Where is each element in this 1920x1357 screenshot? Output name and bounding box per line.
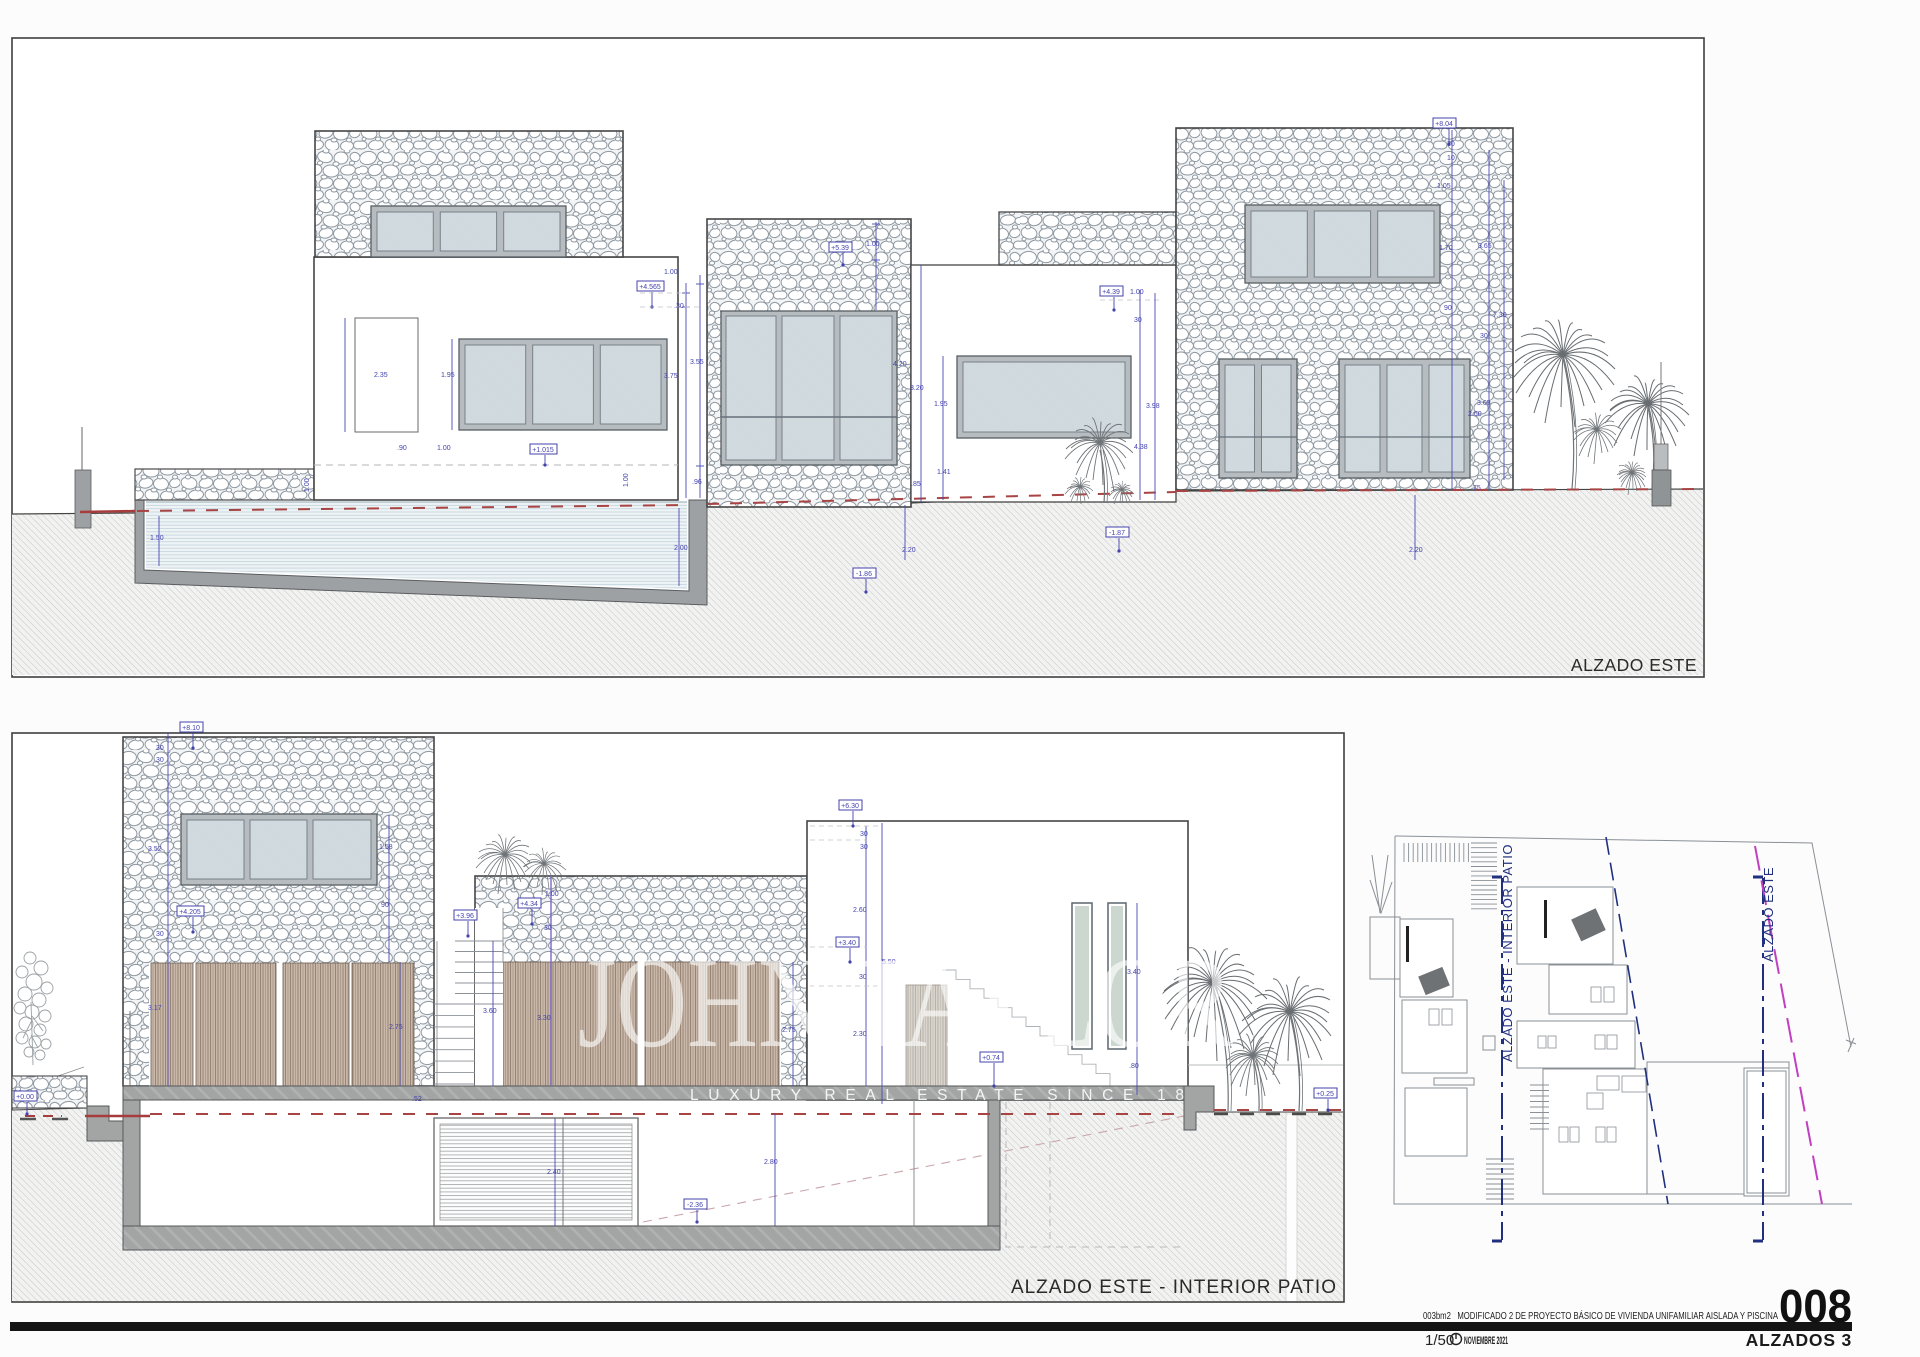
svg-text:2.75: 2.75 <box>389 1024 403 1031</box>
svg-text:1.00: 1.00 <box>623 473 630 487</box>
svg-text:4.20: 4.20 <box>893 361 907 368</box>
svg-text:30: 30 <box>860 831 868 838</box>
svg-text:ALZADO ESTE - INTERIOR PATIO: ALZADO ESTE - INTERIOR PATIO <box>1011 1277 1337 1298</box>
svg-text:+0.25: +0.25 <box>1316 1091 1334 1098</box>
svg-text:1.00: 1.00 <box>437 445 451 452</box>
svg-text:3.98: 3.98 <box>1146 403 1160 410</box>
svg-text:30: 30 <box>1134 317 1142 324</box>
svg-text:+8.04: +8.04 <box>1435 121 1453 128</box>
svg-text:.52: .52 <box>412 1096 422 1103</box>
svg-text:3.75: 3.75 <box>664 373 678 380</box>
svg-text:+6.30: +6.30 <box>841 803 859 810</box>
svg-text:+4.565: +4.565 <box>639 284 661 291</box>
svg-text:+3.96: +3.96 <box>456 913 474 920</box>
svg-text:-1.87: -1.87 <box>1109 530 1125 537</box>
svg-text:NOVIEMBRE 2021: NOVIEMBRE 2021 <box>1464 1335 1508 1347</box>
svg-text:ALZADOS 3: ALZADOS 3 <box>1746 1330 1852 1350</box>
svg-text:+4.34: +4.34 <box>520 901 538 908</box>
svg-text:+8.10: +8.10 <box>182 725 200 732</box>
svg-text:.30: .30 <box>674 303 684 310</box>
svg-text:.75: .75 <box>1471 485 1481 492</box>
svg-text:7.30: 7.30 <box>1493 312 1507 319</box>
svg-text:JOHN TAYLOR: JOHN TAYLOR <box>578 931 1233 1075</box>
svg-text:4.38: 4.38 <box>1134 444 1148 451</box>
svg-text:30: 30 <box>860 844 868 851</box>
svg-text:.90: .90 <box>397 445 407 452</box>
svg-text:3.05: 3.05 <box>1477 400 1491 407</box>
svg-text:10: 10 <box>1447 155 1455 162</box>
svg-text:008: 008 <box>1779 1280 1852 1332</box>
svg-text:1.41: 1.41 <box>937 469 951 476</box>
svg-text:ALZADO ESTE: ALZADO ESTE <box>1761 867 1776 962</box>
svg-text:-1.86: -1.86 <box>856 571 872 578</box>
svg-text:003bm2 MODIFICADO 2 DE PROYE: 003bm2 MODIFICADO 2 DE PROYECTO BÁSICO D… <box>1423 1309 1778 1322</box>
svg-text:3.60: 3.60 <box>483 1008 497 1015</box>
svg-text:1.00: 1.00 <box>866 241 880 248</box>
svg-text:1.70: 1.70 <box>1439 245 1453 252</box>
svg-text:-2.36: -2.36 <box>687 1202 703 1209</box>
svg-text:ALZADO ESTE - INTERIOR PATIO: ALZADO ESTE - INTERIOR PATIO <box>1500 844 1515 1062</box>
svg-text:3.20: 3.20 <box>910 385 924 392</box>
svg-text:1.05: 1.05 <box>1437 183 1451 190</box>
svg-text:30: 30 <box>1480 333 1488 340</box>
svg-text:2.35: 2.35 <box>374 372 388 379</box>
svg-text:1.95: 1.95 <box>934 401 948 408</box>
svg-text:1.58: 1.58 <box>379 844 393 851</box>
svg-text:+5.39: +5.39 <box>831 245 849 252</box>
svg-text:2.80: 2.80 <box>764 1159 778 1166</box>
svg-text:+1.015: +1.015 <box>532 447 554 454</box>
svg-text:3.55: 3.55 <box>690 359 704 366</box>
svg-text:LUXURY REAL ESTATE SINCE 18: LUXURY REAL ESTATE SINCE 18 <box>690 1087 1190 1104</box>
svg-text:1.00: 1.00 <box>545 891 559 898</box>
svg-text:3.17: 3.17 <box>148 1005 162 1012</box>
svg-text:.85: .85 <box>911 481 921 488</box>
svg-text:1/50: 1/50 <box>1425 1332 1454 1349</box>
svg-text:30: 30 <box>1447 141 1455 148</box>
svg-text:1.50: 1.50 <box>150 535 164 542</box>
svg-text:2.40: 2.40 <box>547 1169 561 1176</box>
svg-text:3.52: 3.52 <box>148 846 162 853</box>
svg-text:30: 30 <box>156 745 164 752</box>
svg-text:2.20: 2.20 <box>1409 547 1423 554</box>
svg-text:+4.205: +4.205 <box>179 909 201 916</box>
svg-text:2.20: 2.20 <box>902 547 916 554</box>
svg-text:3.30: 3.30 <box>537 1015 551 1022</box>
svg-text:2.00: 2.00 <box>674 545 688 552</box>
svg-text:+0.00: +0.00 <box>16 1094 34 1101</box>
svg-text:ALZADO ESTE: ALZADO ESTE <box>1571 655 1697 675</box>
svg-text:30: 30 <box>156 931 164 938</box>
svg-text:30: 30 <box>544 925 552 932</box>
svg-text:1.95: 1.95 <box>441 372 455 379</box>
svg-text:1.00: 1.00 <box>1130 289 1144 296</box>
svg-text:+4.39: +4.39 <box>1102 289 1120 296</box>
svg-text:.96: .96 <box>692 479 702 486</box>
svg-text:2.60: 2.60 <box>853 907 867 914</box>
svg-text:1.00: 1.00 <box>664 269 678 276</box>
svg-text:90: 90 <box>381 902 389 909</box>
svg-text:1.00: 1.00 <box>304 478 311 492</box>
svg-text:2.60: 2.60 <box>1468 411 1482 418</box>
svg-text:30: 30 <box>156 757 164 764</box>
svg-text:90: 90 <box>1444 305 1452 312</box>
svg-text:3.65: 3.65 <box>1478 243 1492 250</box>
